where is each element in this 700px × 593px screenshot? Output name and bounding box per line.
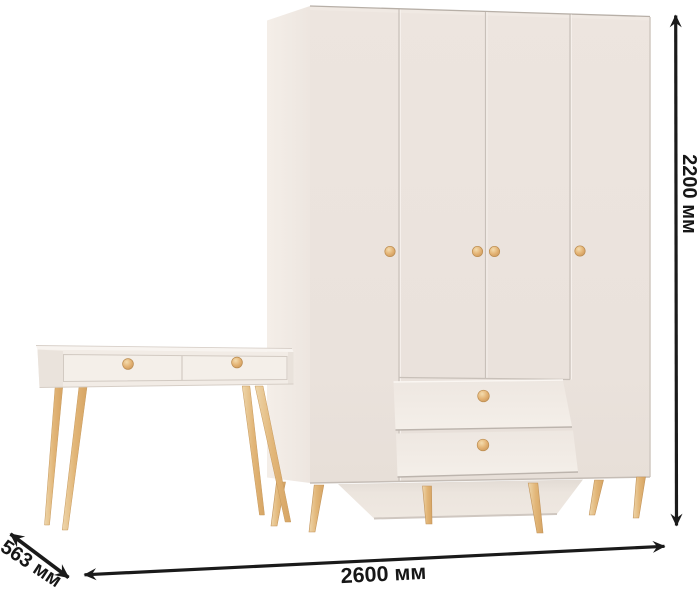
wardrobe-leg-front-right [633, 477, 645, 518]
console-table-body [36, 346, 294, 388]
plinth-face [338, 480, 583, 519]
table-knob-right [232, 357, 243, 368]
table-left-end-face [38, 350, 64, 388]
door-knob-4 [575, 246, 585, 256]
height-dimension-label: 2200 мм [678, 154, 700, 234]
wardrobe-drawer-bottom [396, 431, 578, 477]
console-table-legs [45, 386, 291, 530]
table-leg-rear-left [45, 386, 63, 525]
height-dimension-arrow [676, 16, 677, 526]
door-knob-1 [385, 246, 395, 256]
width-dimension-label: 2600 мм [340, 560, 427, 588]
table-drawer-band [64, 355, 288, 382]
drawer-knob-top [478, 390, 490, 402]
wardrobe-side-panel [267, 6, 310, 483]
table-right-end-face [288, 352, 294, 384]
table-leg-front-left [62, 387, 87, 530]
drawer-knob-bottom [477, 439, 489, 451]
product-image: 2200 мм 2600 мм 563 мм [0, 0, 700, 593]
door-knob-2 [472, 246, 482, 256]
door-knob-3 [489, 246, 499, 256]
wardrobe-leg-rear-right [589, 480, 603, 515]
wardrobe-leg-front-left [309, 485, 324, 532]
table-knob-left [123, 359, 134, 370]
console-table [36, 346, 294, 531]
wardrobe [267, 6, 650, 533]
wardrobe-plinth [338, 480, 583, 519]
wardrobe-drawer-top [394, 381, 573, 430]
depth-dimension-label: 563 мм [0, 536, 66, 592]
furniture-dimension-diagram: 2200 мм 2600 мм 563 мм [0, 0, 700, 593]
